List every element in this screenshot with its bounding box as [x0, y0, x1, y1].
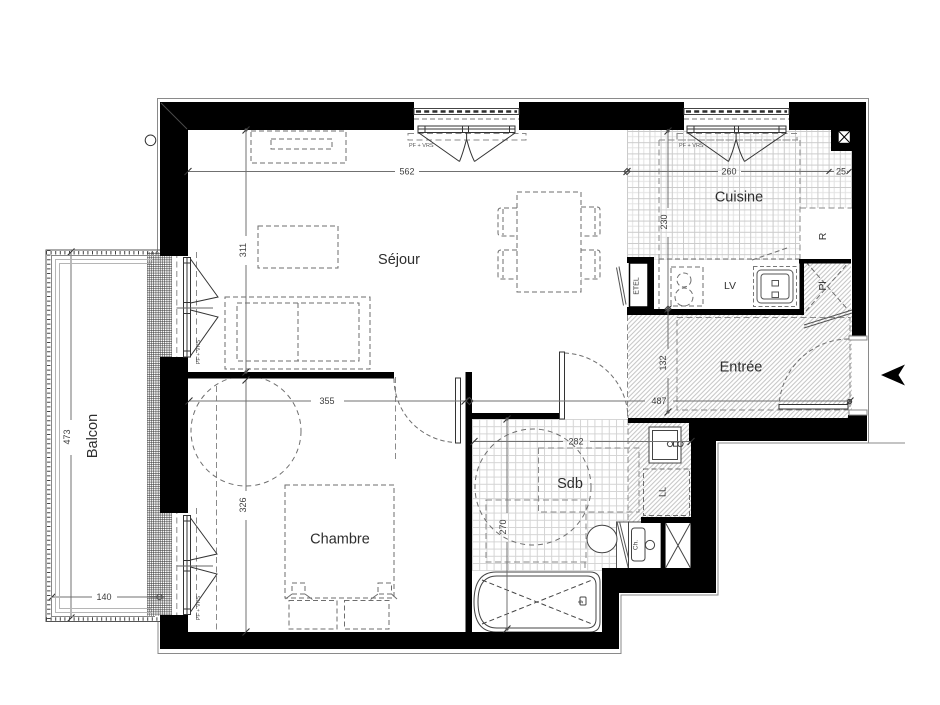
svg-text:Séjour: Séjour	[378, 252, 420, 268]
svg-text:473: 473	[62, 429, 72, 444]
svg-text:260: 260	[721, 167, 736, 177]
svg-text:PF + VRS: PF + VRS	[196, 595, 202, 620]
svg-text:282: 282	[568, 437, 583, 447]
svg-text:311: 311	[238, 243, 248, 257]
svg-text:LV: LV	[724, 280, 736, 292]
svg-text:R: R	[817, 232, 829, 240]
svg-text:487: 487	[651, 396, 666, 406]
svg-text:LL: LL	[658, 487, 668, 497]
svg-text:270: 270	[498, 519, 508, 534]
svg-text:562: 562	[399, 167, 414, 177]
svg-text:Entrée: Entrée	[720, 360, 763, 376]
svg-text:ETEL: ETEL	[634, 277, 641, 295]
svg-text:Chambre: Chambre	[310, 532, 370, 548]
svg-text:Sdb: Sdb	[557, 476, 583, 492]
svg-text:Cuisine: Cuisine	[715, 190, 763, 206]
svg-text:326: 326	[238, 497, 248, 512]
svg-text:Pl: Pl	[817, 281, 829, 290]
svg-text:PF + VRS: PF + VRS	[409, 143, 434, 149]
svg-text:PF + VRS: PF + VRS	[196, 339, 202, 364]
svg-text:132: 132	[658, 355, 668, 370]
svg-text:PF + VRS: PF + VRS	[679, 143, 704, 149]
svg-text:Ch.: Ch.	[633, 540, 640, 550]
svg-text:230: 230	[659, 214, 669, 229]
svg-text:140: 140	[96, 592, 111, 602]
svg-text:25: 25	[836, 167, 846, 177]
svg-text:355: 355	[319, 396, 334, 406]
svg-text:Balcon: Balcon	[85, 414, 101, 458]
